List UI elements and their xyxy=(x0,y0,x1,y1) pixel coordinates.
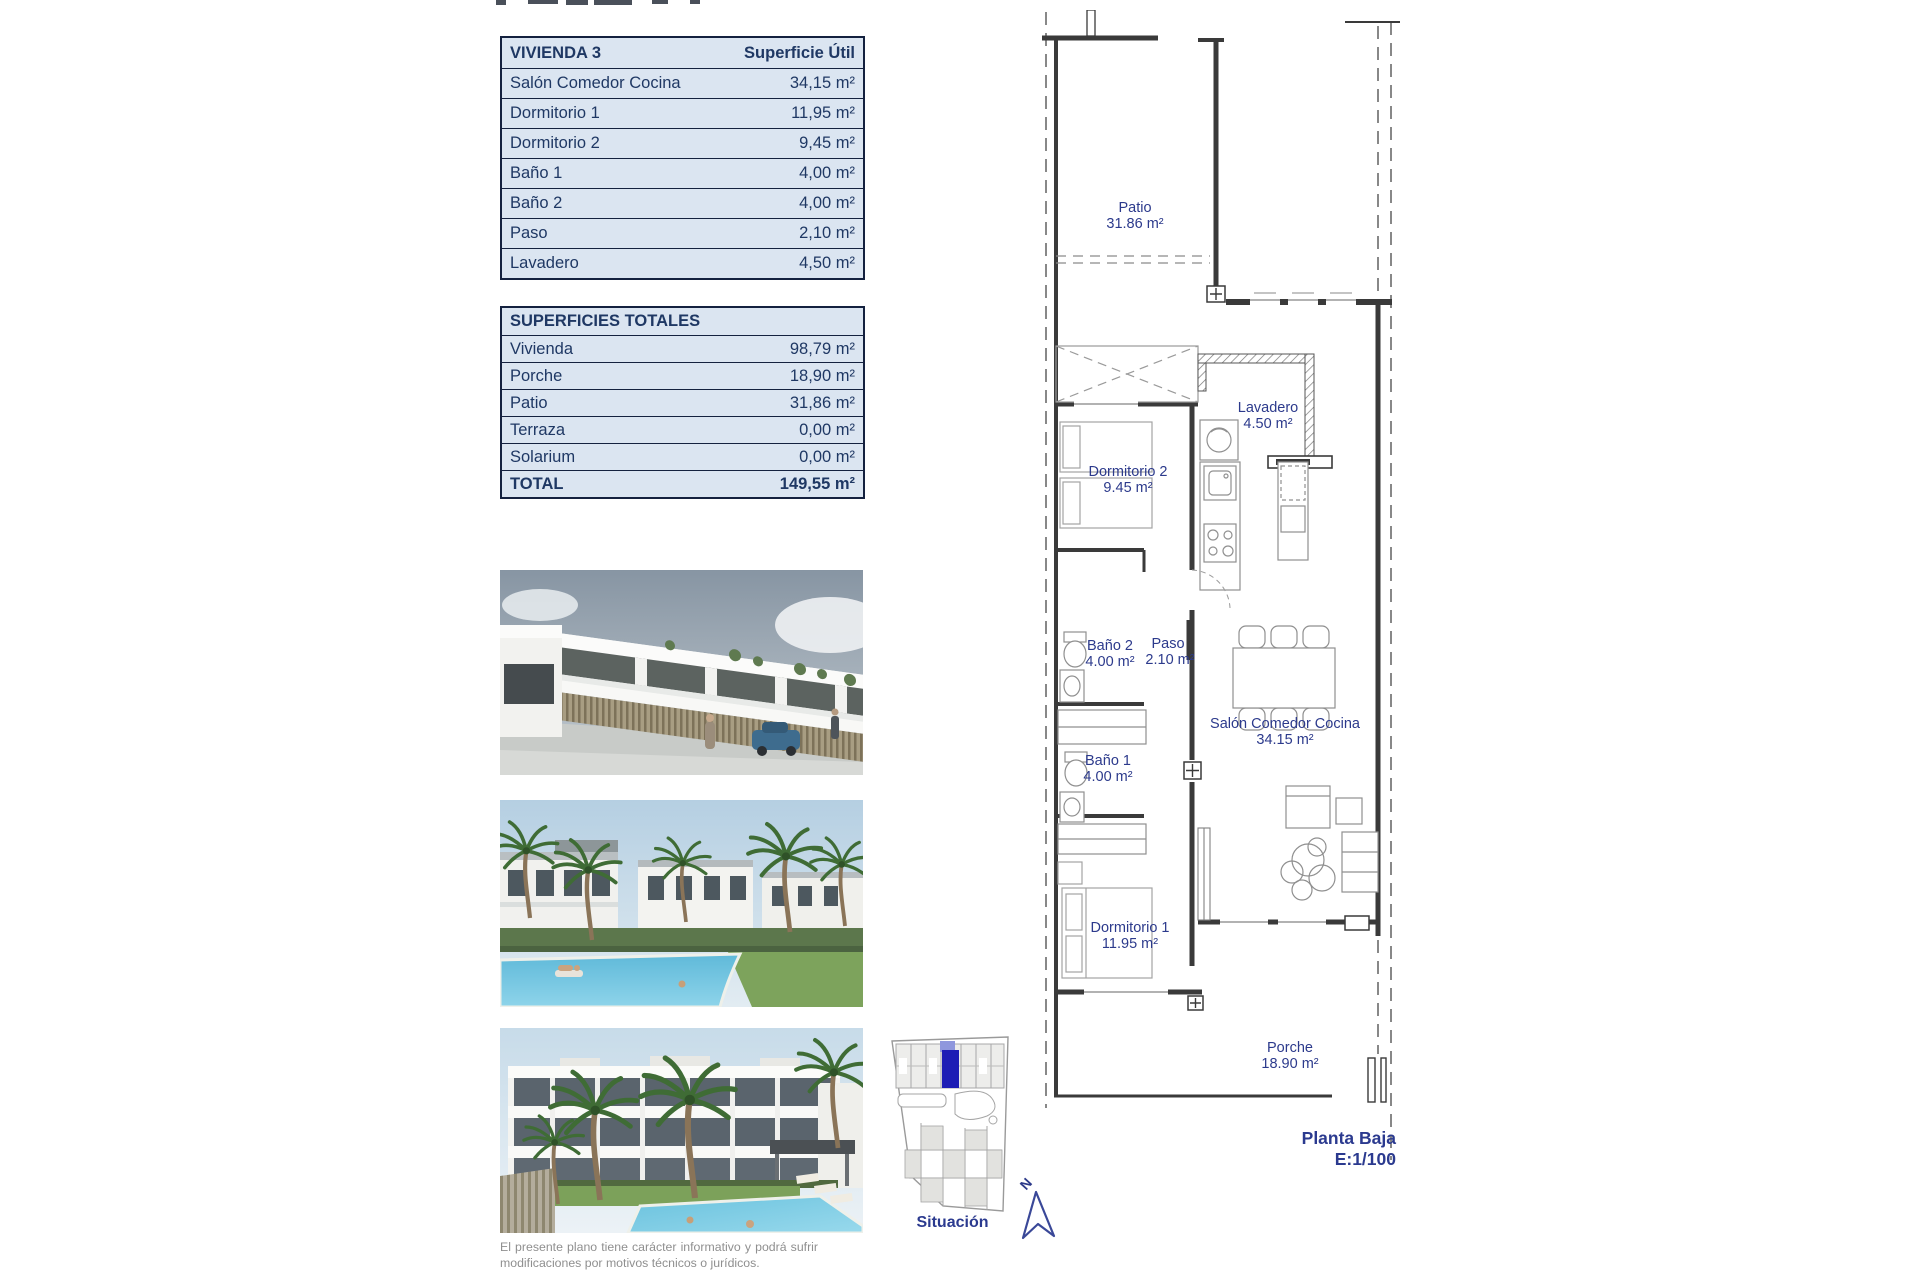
table-header-row: VIVIENDA 3 Superficie Útil xyxy=(502,38,863,68)
patio-edge-dashed xyxy=(1056,256,1210,263)
row-value: 9,45 m² xyxy=(799,134,855,153)
table-header-row: SUPERFICIES TOTALES xyxy=(502,308,863,335)
cropped-edge-fragment xyxy=(528,0,558,4)
row-label: Paso xyxy=(510,224,548,243)
room-area: 9.45 m² xyxy=(1103,480,1152,496)
crossed-area xyxy=(1056,346,1198,402)
plan-brochure-page: VIVIENDA 3 Superficie Útil Salón Comedor… xyxy=(0,0,1920,1280)
row-label: Porche xyxy=(510,367,562,386)
table-row: Porche 18,90 m² xyxy=(502,362,863,389)
table-row: Terraza 0,00 m² xyxy=(502,416,863,443)
row-value: 0,00 m² xyxy=(799,448,855,467)
cropped-edge-fragment xyxy=(652,0,668,4)
row-value: 0,00 m² xyxy=(799,421,855,440)
kitchen-counter xyxy=(1200,462,1240,590)
cropped-edge-fragment xyxy=(690,0,700,4)
room-area: 18.90 m² xyxy=(1261,1056,1318,1072)
row-value: 34,15 m² xyxy=(790,74,855,93)
render-photo-pool-palms xyxy=(500,800,863,1007)
room-label: Porche xyxy=(1267,1040,1313,1056)
row-value: 149,55 m² xyxy=(780,475,855,494)
table-row: Baño 1 4,00 m² xyxy=(502,158,863,188)
table-row: Salón Comedor Cocina 34,15 m² xyxy=(502,68,863,98)
row-label: Dormitorio 1 xyxy=(510,104,600,123)
site-plan-caption: Situación xyxy=(885,1214,1020,1232)
porch-columns xyxy=(1368,1058,1386,1102)
row-label: Dormitorio 2 xyxy=(510,134,600,153)
table-row: Lavadero 4,50 m² xyxy=(502,248,863,278)
room-area: 31.86 m² xyxy=(1106,216,1163,232)
floor-plan: Patio 31.86 m² Lavadero 4.50 m² Dormitor… xyxy=(1040,10,1400,1165)
table-row: Solarium 0,00 m² xyxy=(502,443,863,470)
row-value: 2,10 m² xyxy=(799,224,855,243)
table-row: Paso 2,10 m² xyxy=(502,218,863,248)
north-arrow-icon: N xyxy=(1012,1176,1072,1248)
table-total-row: TOTAL 149,55 m² xyxy=(502,470,863,497)
row-value: 98,79 m² xyxy=(790,340,855,359)
tall-window xyxy=(1198,828,1210,920)
row-value: 11,95 m² xyxy=(791,104,855,123)
row-label: Baño 1 xyxy=(510,164,562,183)
row-label: Lavadero xyxy=(510,254,579,273)
row-value: 4,00 m² xyxy=(799,194,855,213)
cropped-edge-fragment xyxy=(566,0,588,5)
room-label: Baño 2 xyxy=(1087,638,1133,654)
north-label: N xyxy=(1016,1176,1035,1193)
vivienda-surface-table: VIVIENDA 3 Superficie Útil Salón Comedor… xyxy=(500,36,865,280)
table-row: Vivienda 98,79 m² xyxy=(502,335,863,362)
table-title: SUPERFICIES TOTALES xyxy=(510,312,700,331)
row-label: Terraza xyxy=(510,421,565,440)
table-title: VIVIENDA 3 xyxy=(510,44,601,63)
highlighted-unit xyxy=(942,1050,959,1088)
room-label: Dormitorio 2 xyxy=(1089,464,1168,480)
room-area: 11.95 m² xyxy=(1102,936,1158,952)
room-area: 4.50 m² xyxy=(1243,416,1292,432)
kitchen-island xyxy=(1278,462,1308,560)
room-area: 34.15 m² xyxy=(1256,732,1313,748)
row-label: Patio xyxy=(510,394,548,413)
row-value: 31,86 m² xyxy=(790,394,855,413)
caption-line-1: Planta Baja xyxy=(1236,1128,1396,1149)
room-label: Salón Comedor Cocina xyxy=(1210,716,1361,732)
row-value: 18,90 m² xyxy=(790,367,855,386)
dining-set xyxy=(1233,626,1335,730)
table-header-value: Superficie Útil xyxy=(744,44,855,63)
row-value: 4,50 m² xyxy=(799,254,855,273)
table-row: Dormitorio 1 11,95 m² xyxy=(502,98,863,128)
render-photo-townhouses xyxy=(500,570,863,775)
room-area: 4.00 m² xyxy=(1083,769,1132,785)
washing-machine xyxy=(1200,420,1238,460)
table-row: Dormitorio 2 9,45 m² xyxy=(502,128,863,158)
room-label: Lavadero xyxy=(1238,400,1298,416)
render-photo-apartments-pool xyxy=(500,1028,863,1233)
room-label: Baño 1 xyxy=(1085,753,1131,769)
row-label: TOTAL xyxy=(510,475,563,494)
totals-surface-table: SUPERFICIES TOTALES Vivienda 98,79 m² Po… xyxy=(500,306,865,499)
cropped-edge-fragment xyxy=(594,0,632,5)
floor-plan-caption: Planta Baja E:1/100 xyxy=(1236,1128,1396,1170)
table-row: Patio 31,86 m² xyxy=(502,389,863,416)
room-label: Patio xyxy=(1118,200,1151,216)
room-area: 2.10 m² xyxy=(1145,652,1194,668)
cropped-edge-fragment xyxy=(496,0,506,5)
site-plan-map xyxy=(885,1028,1020,1218)
row-value: 4,00 m² xyxy=(799,164,855,183)
room-area: 4.00 m² xyxy=(1085,654,1134,670)
table-row: Baño 2 4,00 m² xyxy=(502,188,863,218)
caption-line-2: E:1/100 xyxy=(1236,1149,1396,1170)
row-label: Solarium xyxy=(510,448,575,467)
disclaimer-text: El presente plano tiene carácter informa… xyxy=(500,1239,818,1271)
room-label: Paso xyxy=(1151,636,1184,652)
row-label: Salón Comedor Cocina xyxy=(510,74,681,93)
room-label: Dormitorio 1 xyxy=(1091,920,1170,936)
row-label: Vivienda xyxy=(510,340,573,359)
living-furniture xyxy=(1281,786,1378,900)
row-label: Baño 2 xyxy=(510,194,562,213)
